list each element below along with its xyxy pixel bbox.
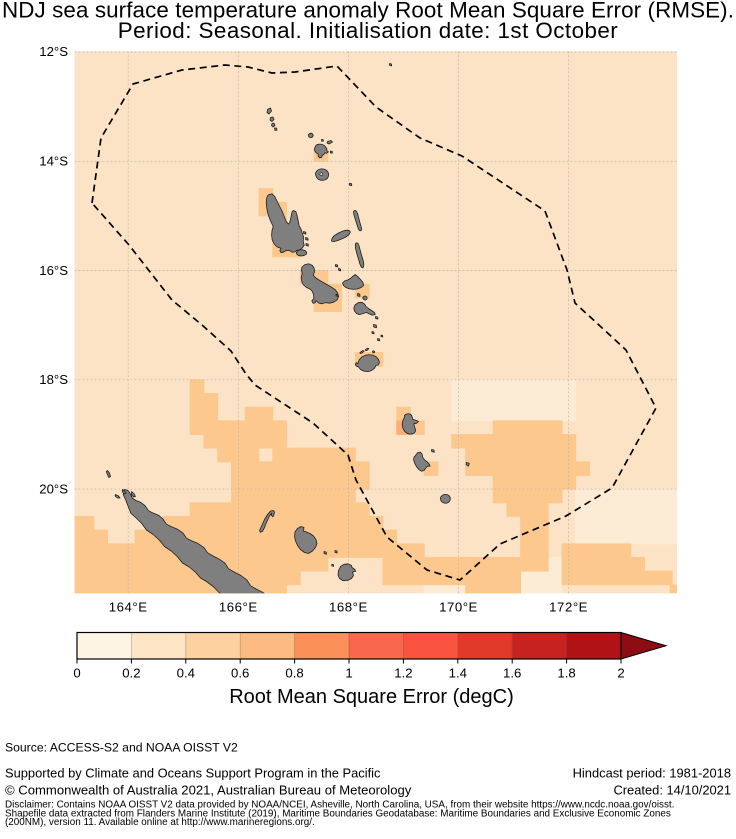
svg-text:172°E: 172°E xyxy=(549,600,588,615)
svg-text:12°S: 12°S xyxy=(39,44,68,59)
svg-text:0.6: 0.6 xyxy=(231,666,249,681)
svg-text:170°E: 170°E xyxy=(439,600,478,615)
svg-text:Supported by Climate and Ocean: Supported by Climate and Oceans Support … xyxy=(5,766,381,781)
svg-text:© Commonwealth of Australia 20: © Commonwealth of Australia 2021, Austra… xyxy=(5,783,412,798)
svg-text:20°S: 20°S xyxy=(39,481,68,496)
svg-text:1.2: 1.2 xyxy=(394,666,412,681)
svg-text:Source: ACCESS-S2 and NOAA OIS: Source: ACCESS-S2 and NOAA OISST V2 xyxy=(5,741,238,755)
svg-text:0: 0 xyxy=(73,666,80,681)
svg-text:Created: 14/10/2021: Created: 14/10/2021 xyxy=(613,783,731,798)
svg-text:168°E: 168°E xyxy=(329,600,368,615)
svg-text:Period: Seasonal. Initialisati: Period: Seasonal. Initialisation date: 1… xyxy=(118,18,619,43)
svg-text:1.6: 1.6 xyxy=(503,666,521,681)
svg-text:18°S: 18°S xyxy=(39,372,68,387)
svg-text:(200NM), version 11. Available: (200NM), version 11. Available online at… xyxy=(5,817,315,828)
svg-text:1: 1 xyxy=(345,666,352,681)
svg-text:1.8: 1.8 xyxy=(557,666,575,681)
svg-text:166°E: 166°E xyxy=(219,600,258,615)
svg-text:0.2: 0.2 xyxy=(122,666,140,681)
svg-text:14°S: 14°S xyxy=(39,154,68,169)
svg-text:Hindcast period: 1981-2018: Hindcast period: 1981-2018 xyxy=(573,766,731,781)
svg-text:16°S: 16°S xyxy=(39,263,68,278)
svg-text:2: 2 xyxy=(617,666,624,681)
svg-text:1.4: 1.4 xyxy=(449,666,467,681)
svg-text:0.4: 0.4 xyxy=(177,666,195,681)
svg-text:164°E: 164°E xyxy=(109,600,148,615)
svg-text:Root Mean Square Error (degC): Root Mean Square Error (degC) xyxy=(229,686,514,708)
svg-text:0.8: 0.8 xyxy=(285,666,303,681)
